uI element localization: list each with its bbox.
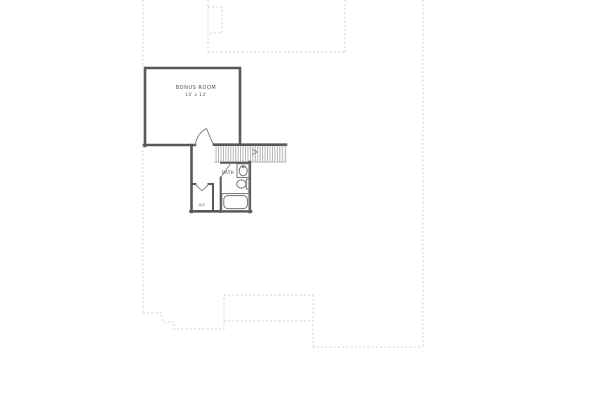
roof-outline-upper [208,0,345,52]
sink-vanity [237,164,249,178]
bonus-room-label: BONUS ROOM [176,85,217,91]
bathtub [222,194,250,211]
floor-plan-page: BONUS ROOM 14' x 13' A/C BATH [0,0,600,400]
bonus-room-dimensions: 14' x 13' [185,92,207,97]
stair-treads [216,146,285,162]
floor-plan: BONUS ROOM 14' x 13' A/C BATH [0,0,600,400]
bonus-room-door [195,129,214,146]
sink-faucet [242,166,244,168]
closet-label: A/C [199,203,206,207]
toilet-tank [246,179,249,189]
roof-outline-lower [143,295,423,347]
bonus-room: BONUS ROOM 14' x 13' [144,68,240,146]
lower-roof-steps [143,295,224,329]
toilet-bowl [237,180,246,188]
tub-basin [224,196,248,209]
bonus-room-walls [145,68,240,146]
toilet [237,179,250,189]
bath-label: BATH [222,170,234,175]
closet-bifold-door [196,185,209,191]
bonus-room-door-swing-arc [195,129,207,146]
bathroom: BATH [221,162,250,212]
staircase [214,145,286,162]
chimney-outline [208,7,222,33]
bonus-room-door-leaf [207,129,214,146]
